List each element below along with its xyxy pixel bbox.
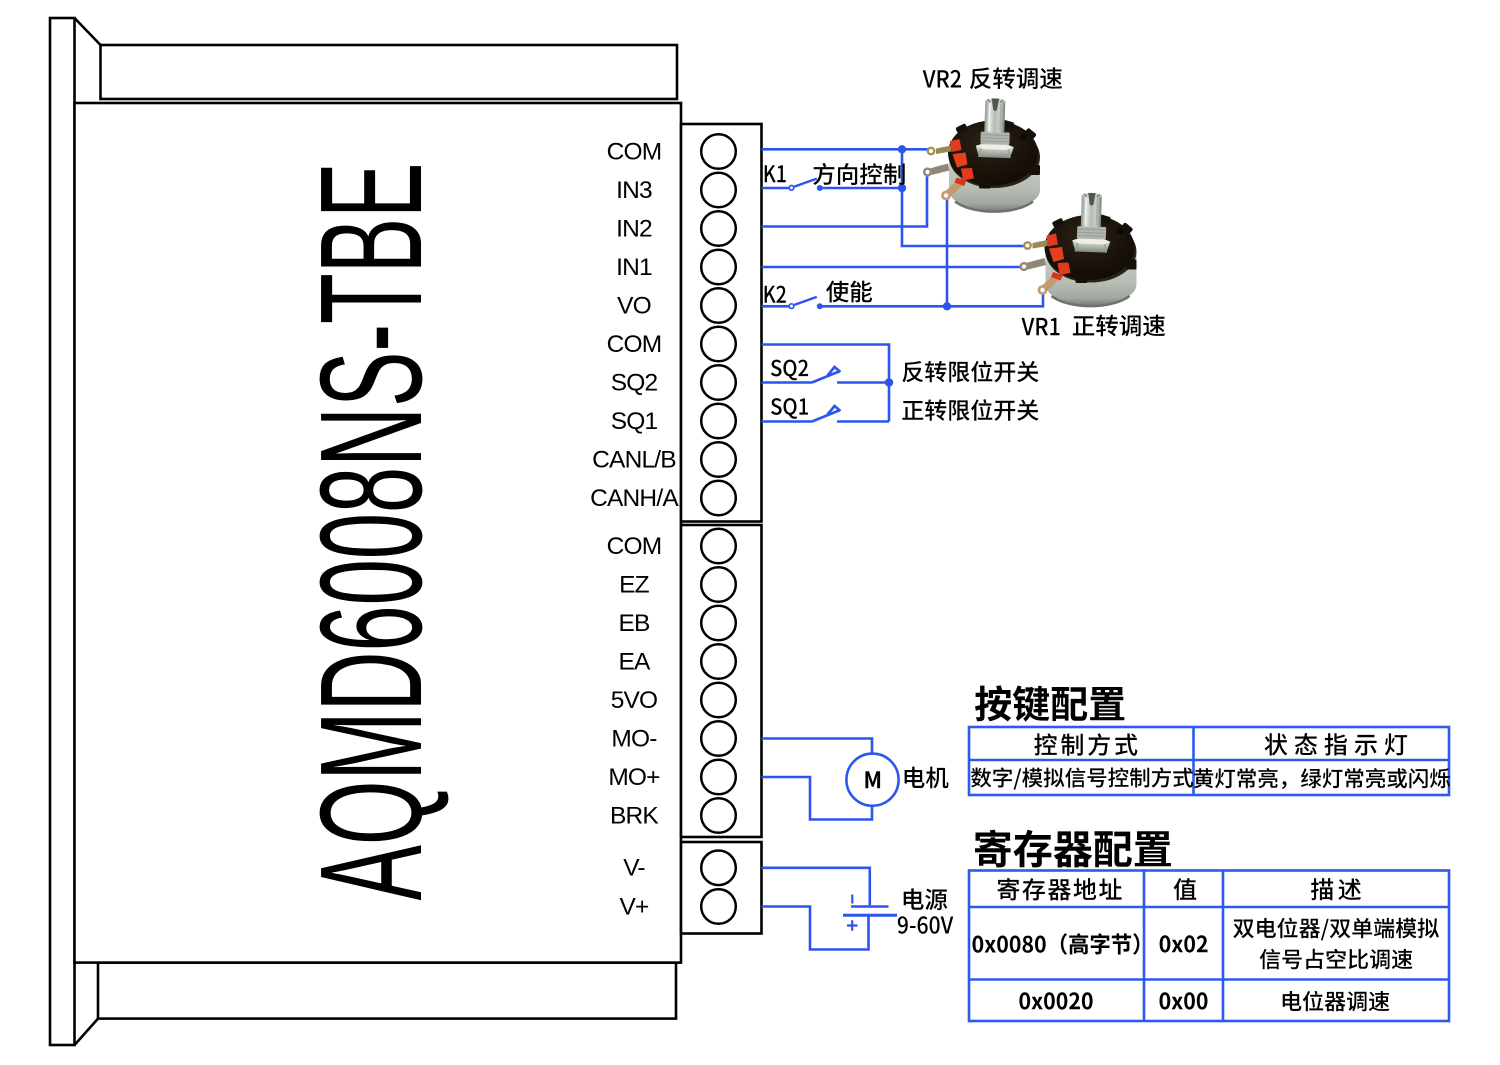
svg-text:COM: COM [607,138,662,165]
svg-text:COM: COM [607,533,662,560]
svg-text:MO+: MO+ [608,764,660,791]
svg-text:IN3: IN3 [616,177,652,204]
svg-text:EA: EA [618,648,651,675]
svg-text:BRK: BRK [610,802,659,829]
svg-text:V-: V- [623,855,645,882]
svg-text:EB: EB [618,610,650,637]
svg-text:VO: VO [617,292,651,319]
svg-text:MO-: MO- [611,725,657,752]
svg-text:5VO: 5VO [611,687,658,714]
svg-text:CANH/A: CANH/A [590,485,679,512]
svg-text:EZ: EZ [619,571,650,598]
svg-text:IN1: IN1 [616,254,652,281]
svg-text:AQMD6008NS-TBE: AQMD6008NS-TBE [291,163,453,901]
svg-text:V+: V+ [619,893,649,920]
svg-text:SQ1: SQ1 [611,408,658,435]
svg-text:COM: COM [607,331,662,358]
svg-text:CANL/B: CANL/B [592,446,676,473]
svg-text:SQ2: SQ2 [611,369,658,396]
svg-text:IN2: IN2 [616,215,652,242]
